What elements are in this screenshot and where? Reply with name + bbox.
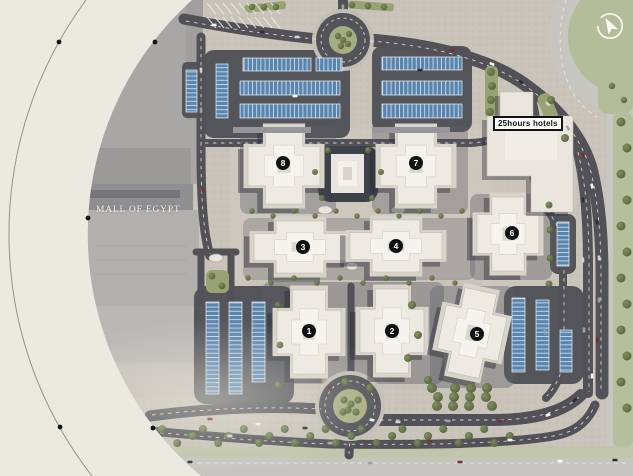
site-plan-map: MALL OF EGYPT 25hours hotels 1 2 3 4 5 6… <box>0 0 633 476</box>
building-marker-4: 4 <box>389 239 403 253</box>
building-marker-1: 1 <box>302 324 316 338</box>
25hours-hotels-label: 25hours hotels <box>493 116 563 131</box>
mall-of-egypt-label: MALL OF EGYPT <box>96 205 180 215</box>
building-marker-6: 6 <box>505 226 519 240</box>
building-marker-7: 7 <box>409 156 423 170</box>
central-courtyard <box>318 146 378 202</box>
site-plan-rendering <box>0 0 633 476</box>
building-marker-3: 3 <box>296 240 310 254</box>
building-marker-5: 5 <box>470 327 484 341</box>
building-marker-2: 2 <box>385 324 399 338</box>
building-marker-8: 8 <box>276 156 290 170</box>
